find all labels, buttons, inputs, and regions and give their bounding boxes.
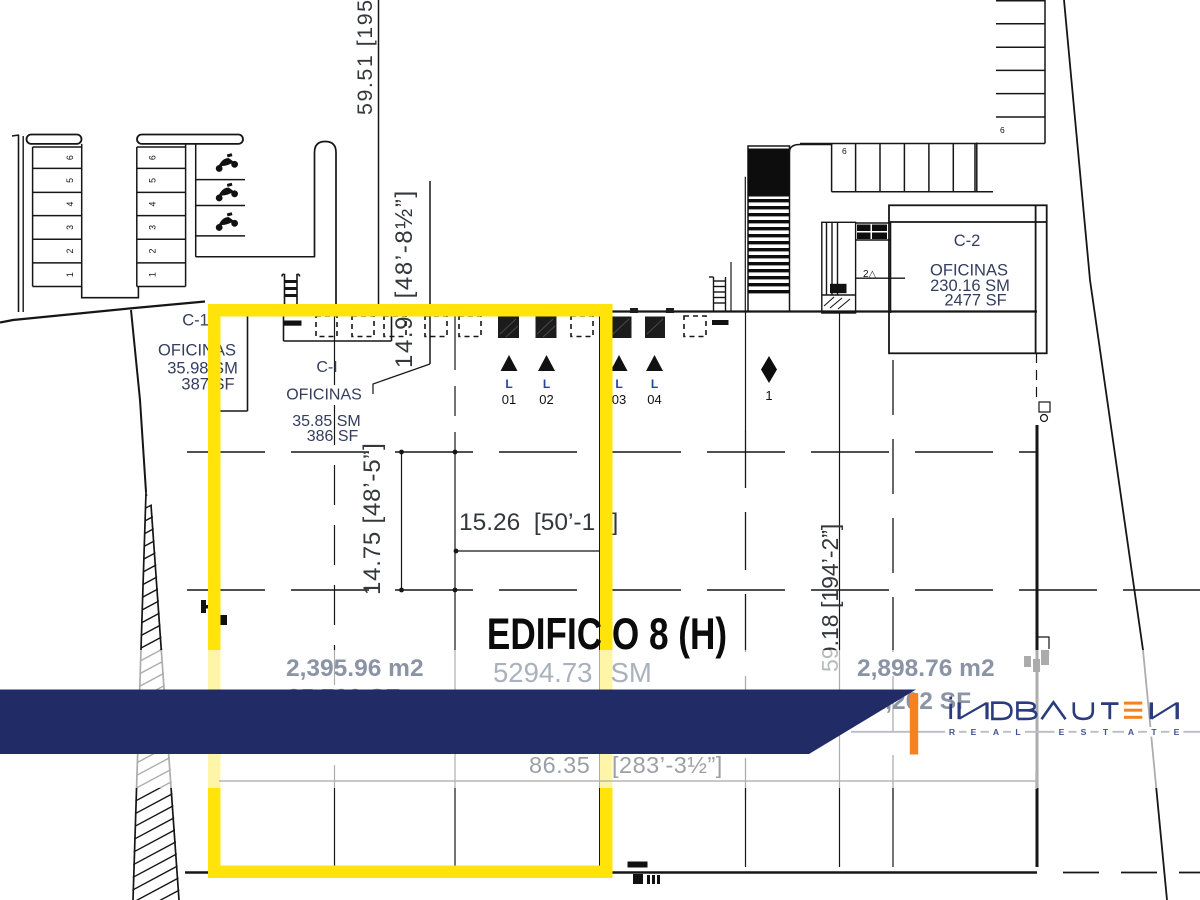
svg-text:SM: SM bbox=[611, 657, 652, 688]
svg-text:A: A bbox=[1128, 727, 1134, 737]
svg-text:C-1: C-1 bbox=[182, 312, 209, 330]
svg-text:L: L bbox=[505, 377, 512, 391]
svg-text:01: 01 bbox=[502, 392, 516, 407]
svg-text:2,395.96 m2: 2,395.96 m2 bbox=[286, 655, 424, 682]
svg-text:L: L bbox=[1015, 727, 1020, 737]
svg-text:L: L bbox=[615, 377, 622, 391]
svg-text:59.18 [194’-2”]: 59.18 [194’-2”] bbox=[817, 524, 843, 672]
svg-text:2477 SF: 2477 SF bbox=[944, 292, 1006, 310]
svg-text:C-I: C-I bbox=[316, 359, 337, 376]
svg-text:OFICINAS: OFICINAS bbox=[158, 342, 236, 360]
svg-text:R: R bbox=[949, 727, 956, 737]
svg-text:6: 6 bbox=[65, 155, 75, 160]
svg-text:3: 3 bbox=[65, 225, 75, 230]
svg-text:2: 2 bbox=[65, 248, 75, 253]
svg-text:A: A bbox=[993, 727, 999, 737]
svg-text:5294.73: 5294.73 bbox=[493, 657, 592, 688]
svg-text:6: 6 bbox=[842, 146, 847, 156]
svg-text:2,898.76 m2: 2,898.76 m2 bbox=[857, 655, 995, 682]
svg-text:C-2: C-2 bbox=[954, 232, 981, 250]
svg-text:14.9 [48’-8½”]: 14.9 [48’-8½”] bbox=[391, 189, 418, 368]
svg-text:14.75 [48’-5”]: 14.75 [48’-5”] bbox=[359, 442, 386, 595]
svg-text:E: E bbox=[1174, 727, 1180, 737]
svg-text:5: 5 bbox=[148, 178, 158, 183]
svg-text:1: 1 bbox=[65, 272, 75, 277]
svg-text:]: ] bbox=[612, 509, 619, 536]
svg-text:15.26 [50’-1: 15.26 [50’-1 bbox=[459, 509, 595, 536]
svg-text:03: 03 bbox=[612, 392, 626, 407]
svg-text:4: 4 bbox=[65, 201, 75, 206]
svg-text:02: 02 bbox=[539, 392, 553, 407]
svg-text:386 SF: 386 SF bbox=[307, 428, 359, 445]
svg-text:L: L bbox=[651, 377, 658, 391]
svg-text:E: E bbox=[1059, 727, 1065, 737]
svg-text:3: 3 bbox=[148, 225, 158, 230]
svg-text:6: 6 bbox=[148, 155, 158, 160]
svg-text:1: 1 bbox=[765, 388, 772, 403]
svg-text:T: T bbox=[1103, 727, 1109, 737]
svg-text:L: L bbox=[543, 377, 550, 391]
svg-text:04: 04 bbox=[647, 392, 661, 407]
svg-text:2: 2 bbox=[148, 248, 158, 253]
svg-text:6: 6 bbox=[1000, 125, 1005, 135]
svg-text:2△: 2△ bbox=[863, 269, 877, 280]
svg-text:OFICINAS: OFICINAS bbox=[286, 387, 362, 404]
svg-text:86.35: 86.35 bbox=[529, 752, 590, 778]
svg-text:T: T bbox=[1151, 727, 1157, 737]
svg-text:59.51 [195'-: 59.51 [195'- bbox=[353, 0, 377, 115]
svg-text:4: 4 bbox=[148, 201, 158, 206]
svg-text:E: E bbox=[971, 727, 977, 737]
svg-text:1: 1 bbox=[148, 272, 158, 277]
svg-text:5: 5 bbox=[65, 178, 75, 183]
svg-text:[283’-3½”]: [283’-3½”] bbox=[612, 752, 723, 778]
svg-text:S: S bbox=[1081, 727, 1087, 737]
